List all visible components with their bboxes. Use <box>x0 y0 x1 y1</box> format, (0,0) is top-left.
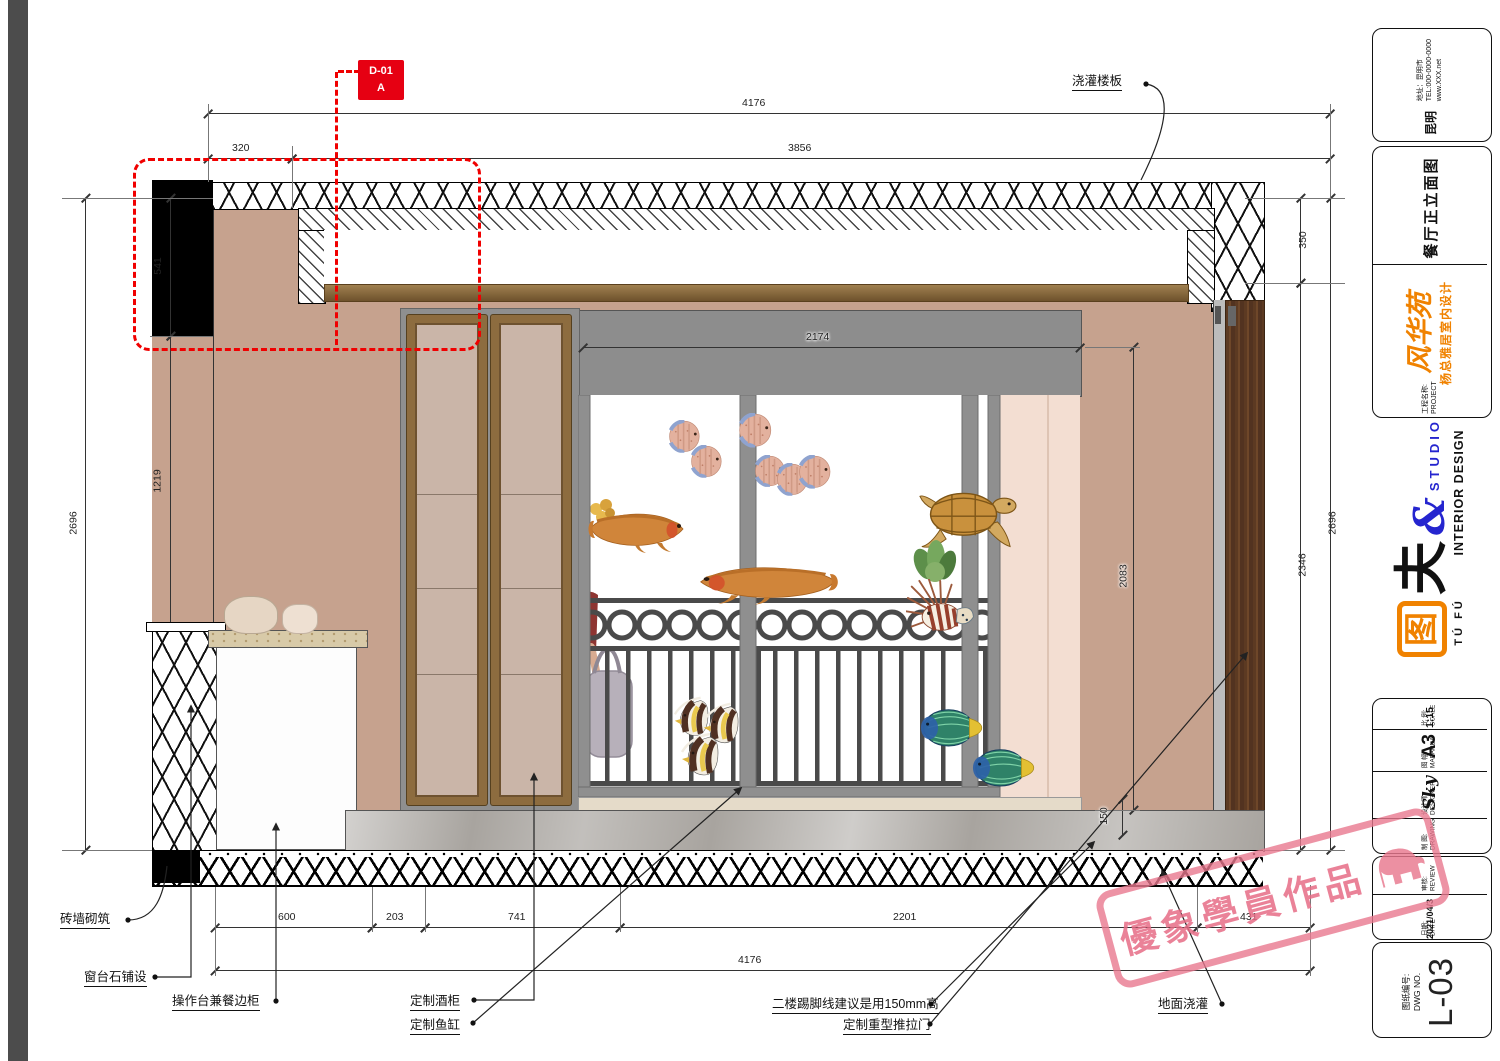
dim-right-a: 350 <box>1297 231 1309 249</box>
sheet-date: 2021/04/3 <box>1425 899 1435 939</box>
label-slab: 浇灌楼板 <box>1072 70 1122 91</box>
logo-ampersand: & <box>1413 497 1447 535</box>
project-label-en: PROJECT <box>1430 381 1439 414</box>
discus-fish <box>670 421 700 451</box>
label-floor: 地面浇灌 <box>1158 993 1208 1014</box>
wine-cabinet-door-left <box>407 315 487 805</box>
wine-cabinet-door-right <box>491 315 571 805</box>
label-wine: 定制酒柜 <box>410 990 460 1011</box>
sheet-size: A3 <box>1419 734 1441 758</box>
dim-right-total: 2696 <box>1327 511 1339 534</box>
door-track-hardware <box>1215 306 1221 324</box>
titleblock-contact: 昆明 地址：昆明市 TEL:000-0000-0000 www.XXX.net <box>1372 28 1492 142</box>
dim-top-total: 4176 <box>742 97 765 109</box>
dim-bot-b: 203 <box>386 911 404 923</box>
tank-header <box>578 310 1082 397</box>
wine-cabinet <box>400 308 580 814</box>
studio-logo: 图 夫 & STUDIO TÚ FÚ INTERIOR DESIGN <box>1372 420 1490 655</box>
logo-studio: STUDIO <box>1427 418 1442 491</box>
info-draw-cn: 制 图: <box>1422 819 1430 850</box>
jar <box>282 604 318 634</box>
dim-bot-a: 600 <box>278 911 296 923</box>
titleblock-meta: 日期: DATE 2021/04/3 审核: REVIEW <box>1372 856 1492 940</box>
dim-bot-d: 2201 <box>893 911 916 923</box>
aquarium-view <box>578 395 1080 797</box>
dim-top-a: 320 <box>232 142 250 154</box>
window-edge-strip <box>8 0 28 1061</box>
floor-black-block <box>152 850 200 883</box>
project-brand: 风华苑 <box>1407 293 1434 374</box>
project-label-cn: 工程名称: <box>1421 381 1430 414</box>
sliding-door-panel <box>1225 300 1265 852</box>
info-draw-en: DRAWING <box>1430 819 1438 850</box>
dim-top-b: 3856 <box>788 142 811 154</box>
dwg-label-cn: 图纸编号: <box>1400 974 1412 1010</box>
logo-pinyin: TÚ FÚ <box>1453 598 1465 645</box>
dim-bot-e: 431 <box>1240 911 1258 923</box>
label-sill: 窗台石铺设 <box>84 966 147 987</box>
dim-left-total: 2696 <box>68 511 80 534</box>
label-door: 定制重型推拉门 <box>843 1014 931 1035</box>
dim-right-b: 2346 <box>1297 553 1309 576</box>
company-address: 地址：昆明市 <box>1416 39 1425 101</box>
label-counter: 操作台兼餐边柜 <box>172 990 260 1011</box>
designer-name: Sky <box>1420 776 1440 810</box>
label-tank: 定制鱼缸 <box>410 1014 460 1035</box>
label-skirting: 二楼踢脚线建议是用150mm高 <box>772 993 939 1014</box>
dim-line <box>208 113 1330 114</box>
floor-slab-dots <box>152 851 1263 857</box>
project-subtitle: 杨总雅居室内设计 <box>1437 281 1454 385</box>
detail-region-outline <box>133 158 481 351</box>
titleblock-project: 工程名称: PROJECT 风华苑 杨总雅居室内设计 餐厅正立面图 <box>1372 146 1492 418</box>
counter-top <box>208 630 368 648</box>
titleblock-info: 制 图: DRAWING 设计师: DESIGNER Sky 图 幅: MAPA… <box>1372 698 1492 854</box>
dwg-number: L-03 <box>1422 957 1460 1027</box>
sill-wall-hatch <box>152 628 220 852</box>
dim-tank-h: 2083 <box>1118 564 1130 587</box>
dwg-label-en: DWG NO. <box>1412 973 1422 1011</box>
cad-elevation-sheet: D-01 A 4176 320 3856 2696 541 1219 936 3… <box>0 0 1500 1061</box>
dim-bot-c: 741 <box>508 911 526 923</box>
door-track-hardware2 <box>1228 306 1236 326</box>
callout-code: D-01 <box>358 63 404 80</box>
bulkhead-right-leg <box>1187 230 1215 304</box>
company-tel: TEL:000-0000-0000 <box>1425 39 1434 101</box>
dim-tank-w: 2174 <box>806 331 829 343</box>
dim-bot-total: 4176 <box>738 954 761 966</box>
company-web: www.XXX.net <box>1435 39 1444 101</box>
sheet-scale: 1:15 <box>1424 707 1436 728</box>
bowl <box>224 596 278 634</box>
detail-leader-line <box>335 72 338 345</box>
company-region: 昆明 <box>1422 111 1439 135</box>
dim-left-b: 1219 <box>152 469 164 492</box>
detail-callout-tag: D-01 A <box>358 60 404 100</box>
label-brick: 砖墙砌筑 <box>60 908 110 929</box>
meta-review-en: REVIEW <box>1430 865 1438 891</box>
logo-tu-glyph: 图 <box>1397 601 1447 657</box>
logo-fu-glyph: 夫 <box>1398 541 1447 595</box>
counter-cabinet <box>216 646 357 850</box>
meta-review-cn: 审核: <box>1422 865 1430 891</box>
side-wall-panel <box>1000 395 1080 797</box>
logo-tagline: INTERIOR DESIGN <box>1452 429 1466 555</box>
drawing-title: 餐厅正立面图 <box>1420 157 1441 259</box>
right-wall-hatch <box>1211 182 1265 312</box>
titleblock-dwg: 图纸编号: DWG NO. L-03 <box>1372 942 1492 1038</box>
callout-zone: A <box>358 80 404 97</box>
